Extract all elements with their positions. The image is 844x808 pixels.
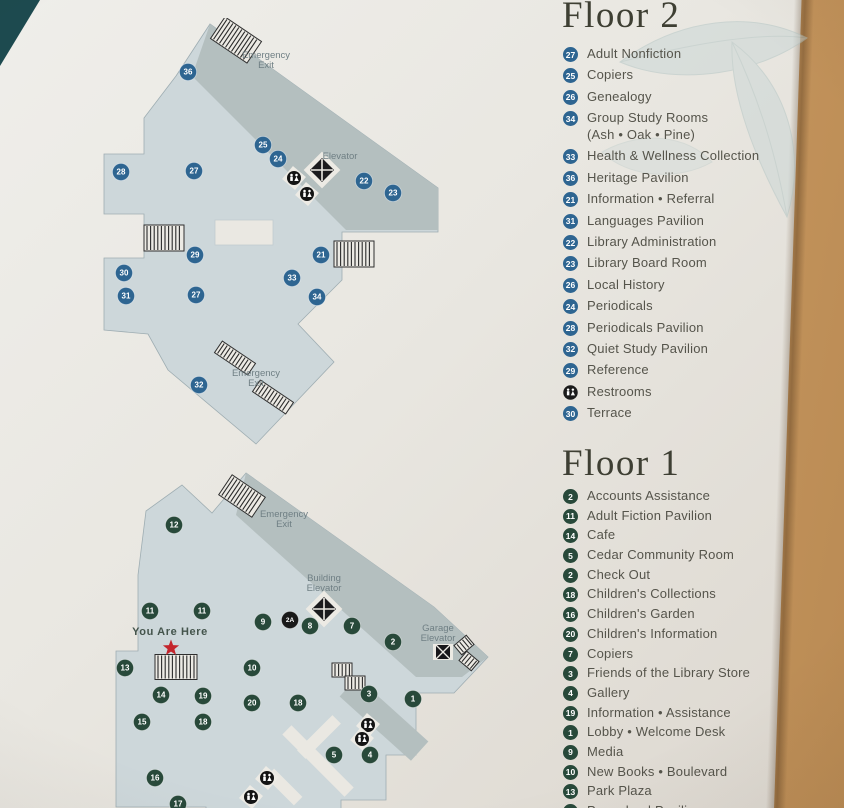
- svg-text:3: 3: [367, 690, 372, 699]
- legend-number-badge: 29: [563, 363, 578, 378]
- legend-item: 30Terrace: [563, 405, 795, 422]
- legend-item: 25Copiers: [563, 67, 795, 84]
- legend-number-badge: 28: [563, 321, 578, 336]
- legend-item: 33Health & Wellness Collection: [563, 148, 795, 165]
- map-marker: 2: [384, 633, 401, 650]
- legend-number-badge: 34: [563, 111, 578, 126]
- legend-item: 13Park Plaza: [563, 783, 795, 800]
- legend-number-badge: 14: [563, 528, 578, 543]
- legend-item: 32Quiet Study Pavilion: [563, 341, 795, 358]
- legend-label: Children's Garden: [587, 606, 695, 623]
- map-marker: 30: [115, 264, 132, 281]
- legend-label: Information • Referral: [587, 191, 714, 208]
- legend-item: 18Children's Collections: [563, 586, 795, 603]
- floor2-map: EmergencyExitElevatorEmergencyExit362524…: [88, 18, 440, 452]
- map-marker: 29: [186, 246, 203, 263]
- legend-label: Media: [587, 744, 623, 761]
- legend-number-badge: 26: [563, 90, 578, 105]
- svg-text:36: 36: [184, 68, 193, 77]
- legend-item: 28Periodicals Pavilion: [563, 320, 795, 337]
- legend-number-badge: 26: [563, 278, 578, 293]
- legend-item: 17Pre-school Pavilion: [563, 803, 795, 808]
- map-marker: 12: [165, 516, 182, 533]
- svg-text:27: 27: [190, 167, 199, 176]
- legend-label: Languages Pavilion: [587, 213, 704, 230]
- legend-label: Pre-school Pavilion: [587, 803, 702, 808]
- legend-item: 21Information • Referral: [563, 191, 795, 208]
- legend-label: Library Administration: [587, 234, 716, 251]
- legend-number-badge: 30: [563, 406, 578, 421]
- map-marker: 32: [190, 376, 207, 393]
- legend-number-badge: 7: [563, 647, 578, 662]
- legend-label: Periodicals: [587, 298, 653, 315]
- svg-text:18: 18: [294, 699, 303, 708]
- legend-number-badge: 13: [563, 784, 578, 799]
- legend-number-badge: 25: [563, 68, 578, 83]
- svg-text:33: 33: [288, 274, 297, 283]
- legend-item: 27Adult Nonfiction: [563, 46, 795, 63]
- floor2-title: Floor 2: [562, 0, 680, 37]
- stairs-icon: [155, 655, 197, 680]
- map-marker: 3: [360, 685, 377, 702]
- legend-number-badge: 2: [563, 568, 578, 583]
- legend-number-badge: 24: [563, 299, 578, 314]
- legend-label: Reference: [587, 362, 649, 379]
- map-marker: 33: [283, 269, 300, 286]
- legend-number-badge: 27: [563, 47, 578, 62]
- legend-item: 19Information • Assistance: [563, 705, 795, 722]
- map-marker: 11: [193, 602, 210, 619]
- legend-label: Copiers: [587, 646, 633, 663]
- legend-number-badge: 36: [563, 171, 578, 186]
- legend-label: Cafe: [587, 527, 615, 544]
- map-marker: 34: [308, 288, 325, 305]
- svg-text:10: 10: [248, 664, 257, 673]
- map-marker: 22: [355, 172, 372, 189]
- map-marker: 25: [254, 136, 271, 153]
- map-marker: 13: [116, 659, 133, 676]
- legend-item: 4Gallery: [563, 685, 795, 702]
- map-marker: 9: [254, 613, 271, 630]
- legend-label: Check Out: [587, 567, 650, 584]
- svg-text:34: 34: [313, 293, 322, 302]
- legend-label: Lobby • Welcome Desk: [587, 724, 725, 741]
- floor1-map: EmergencyExitBuildingElevatorGarageEleva…: [86, 455, 510, 808]
- legend-number-badge: 18: [563, 587, 578, 602]
- svg-text:25: 25: [259, 141, 268, 150]
- legend-number-badge: 4: [563, 686, 578, 701]
- legend-number-badge: 33: [563, 149, 578, 164]
- svg-text:32: 32: [195, 381, 204, 390]
- garage-elevator-icon: [433, 644, 453, 660]
- restrooms-icon: [563, 385, 578, 400]
- legend-number-badge: 32: [563, 342, 578, 357]
- legend-label: Gallery: [587, 685, 630, 702]
- stairs-icon: [332, 663, 352, 677]
- map-marker: 24: [269, 150, 286, 167]
- map-label: Elevator: [323, 151, 358, 162]
- map-marker: 15: [133, 713, 150, 730]
- legend-number-badge: 19: [563, 706, 578, 721]
- legend-label: Adult Fiction Pavilion: [587, 508, 712, 525]
- svg-text:1: 1: [411, 695, 416, 704]
- map-marker: 28: [112, 163, 129, 180]
- map-marker: 16: [146, 769, 163, 786]
- svg-text:8: 8: [308, 622, 313, 631]
- legend-item: 24Periodicals: [563, 298, 795, 315]
- legend-item: 11Adult Fiction Pavilion: [563, 508, 795, 525]
- legend-number-badge: 21: [563, 192, 578, 207]
- legend-number-badge: 2: [563, 489, 578, 504]
- svg-text:2A: 2A: [286, 617, 295, 624]
- legend-number-badge: 16: [563, 607, 578, 622]
- svg-text:15: 15: [138, 718, 147, 727]
- map-marker: 8: [301, 617, 318, 634]
- legend-label: Local History: [587, 277, 665, 294]
- legend-item: 31Languages Pavilion: [563, 213, 795, 230]
- legend-label: Health & Wellness Collection: [587, 148, 759, 165]
- map-marker: 19: [194, 687, 211, 704]
- legend-item: 3Friends of the Library Store: [563, 665, 795, 682]
- map-marker: 36: [179, 63, 196, 80]
- legend-label: Copiers: [587, 67, 633, 84]
- svg-text:27: 27: [192, 291, 201, 300]
- svg-text:4: 4: [368, 751, 373, 760]
- legend-item: 14Cafe: [563, 527, 795, 544]
- floor1-title: Floor 1: [562, 442, 680, 485]
- map-marker: 23: [384, 184, 401, 201]
- legend-item: Restrooms: [563, 384, 795, 401]
- legend-item: 9Media: [563, 744, 795, 761]
- map-marker: 27: [185, 162, 202, 179]
- svg-text:7: 7: [350, 622, 355, 631]
- legend-item: 20Children's Information: [563, 626, 795, 643]
- svg-text:30: 30: [120, 269, 129, 278]
- map-marker: 18: [194, 713, 211, 730]
- map-marker: 11: [141, 602, 158, 619]
- map-label: You Are Here: [132, 626, 208, 638]
- legend-number-badge: 22: [563, 235, 578, 250]
- legend-label: New Books • Boulevard: [587, 764, 727, 781]
- legend-label: Terrace: [587, 405, 632, 422]
- legend-number-badge: 10: [563, 765, 578, 780]
- legend-item: 10New Books • Boulevard: [563, 764, 795, 781]
- svg-text:21: 21: [317, 251, 326, 260]
- legend-item: 5Cedar Community Room: [563, 547, 795, 564]
- svg-text:19: 19: [199, 692, 208, 701]
- map-marker: 7: [343, 617, 360, 634]
- legend-number-badge: 31: [563, 214, 578, 229]
- map-marker: 10: [243, 659, 260, 676]
- legend-number-badge: 3: [563, 666, 578, 681]
- svg-text:11: 11: [146, 607, 155, 616]
- stairs-icon: [144, 225, 184, 251]
- floor2-legend: 27Adult Nonfiction25Copiers26Genealogy34…: [563, 46, 795, 427]
- legend-item: 26Genealogy: [563, 89, 795, 106]
- svg-text:5: 5: [332, 751, 337, 760]
- legend-label: Restrooms: [587, 384, 652, 401]
- legend-label: Genealogy: [587, 89, 652, 106]
- svg-text:28: 28: [117, 168, 126, 177]
- map-marker: 4: [361, 746, 378, 763]
- map-marker: 2A: [281, 611, 298, 628]
- svg-text:12: 12: [170, 521, 179, 530]
- legend-label: Accounts Assistance: [587, 488, 710, 505]
- legend-label: Library Board Room: [587, 255, 707, 272]
- legend-label: Friends of the Library Store: [587, 665, 750, 682]
- svg-text:16: 16: [151, 774, 160, 783]
- legend-item: 1Lobby • Welcome Desk: [563, 724, 795, 741]
- legend-item: 2Check Out: [563, 567, 795, 584]
- legend-number-badge: 11: [563, 509, 578, 524]
- legend-number-badge: 9: [563, 745, 578, 760]
- floor1-legend: 2Accounts Assistance11Adult Fiction Pavi…: [563, 488, 795, 808]
- map-marker: 1: [404, 690, 421, 707]
- legend-number-badge: 23: [563, 256, 578, 271]
- svg-text:9: 9: [261, 618, 266, 627]
- legend-number-badge: 20: [563, 627, 578, 642]
- map-marker: 14: [152, 686, 169, 703]
- svg-text:14: 14: [157, 691, 166, 700]
- legend-label: Adult Nonfiction: [587, 46, 681, 63]
- legend-label: Periodicals Pavilion: [587, 320, 704, 337]
- svg-text:2: 2: [391, 638, 396, 647]
- svg-text:18: 18: [199, 718, 208, 727]
- map-marker: 27: [187, 286, 204, 303]
- legend-label: Cedar Community Room: [587, 547, 734, 564]
- map-marker: 18: [289, 694, 306, 711]
- svg-text:11: 11: [198, 607, 207, 616]
- svg-text:17: 17: [174, 800, 183, 808]
- legend-item: 29Reference: [563, 362, 795, 379]
- svg-text:23: 23: [389, 189, 398, 198]
- legend-item: 2Accounts Assistance: [563, 488, 795, 505]
- legend-item: 34Group Study Rooms(Ash • Oak • Pine): [563, 110, 795, 144]
- map-label: BuildingElevator: [307, 573, 342, 594]
- legend-number-badge: 1: [563, 725, 578, 740]
- legend-item: 23Library Board Room: [563, 255, 795, 272]
- legend-label: Children's Information: [587, 626, 717, 643]
- legend-label: Group Study Rooms(Ash • Oak • Pine): [587, 110, 708, 144]
- map-marker: 31: [117, 287, 134, 304]
- map-label: GarageElevator: [421, 623, 456, 644]
- svg-text:13: 13: [121, 664, 130, 673]
- legend-number-badge: 17: [563, 804, 578, 808]
- legend-label: Children's Collections: [587, 586, 716, 603]
- stairs-icon: [334, 241, 374, 267]
- svg-text:29: 29: [191, 251, 200, 260]
- legend-label: Quiet Study Pavilion: [587, 341, 708, 358]
- legend-item: 22Library Administration: [563, 234, 795, 251]
- map-marker: 20: [243, 694, 260, 711]
- legend-label: Park Plaza: [587, 783, 652, 800]
- legend-item: 7Copiers: [563, 646, 795, 663]
- map-marker: 21: [312, 246, 329, 263]
- stairs-icon: [345, 676, 365, 690]
- svg-text:24: 24: [274, 155, 283, 164]
- legend-item: 26Local History: [563, 277, 795, 294]
- svg-text:20: 20: [248, 699, 257, 708]
- map-marker: 5: [325, 746, 342, 763]
- legend-item: 16Children's Garden: [563, 606, 795, 623]
- legend-item: 36Heritage Pavilion: [563, 170, 795, 187]
- svg-text:22: 22: [360, 177, 369, 186]
- legend-number-badge: 5: [563, 548, 578, 563]
- legend-label: Information • Assistance: [587, 705, 731, 722]
- directory-sign-photo: Floor 2 27Adult Nonfiction25Copiers26Gen…: [0, 0, 844, 808]
- legend-label: Heritage Pavilion: [587, 170, 689, 187]
- svg-text:31: 31: [122, 292, 131, 301]
